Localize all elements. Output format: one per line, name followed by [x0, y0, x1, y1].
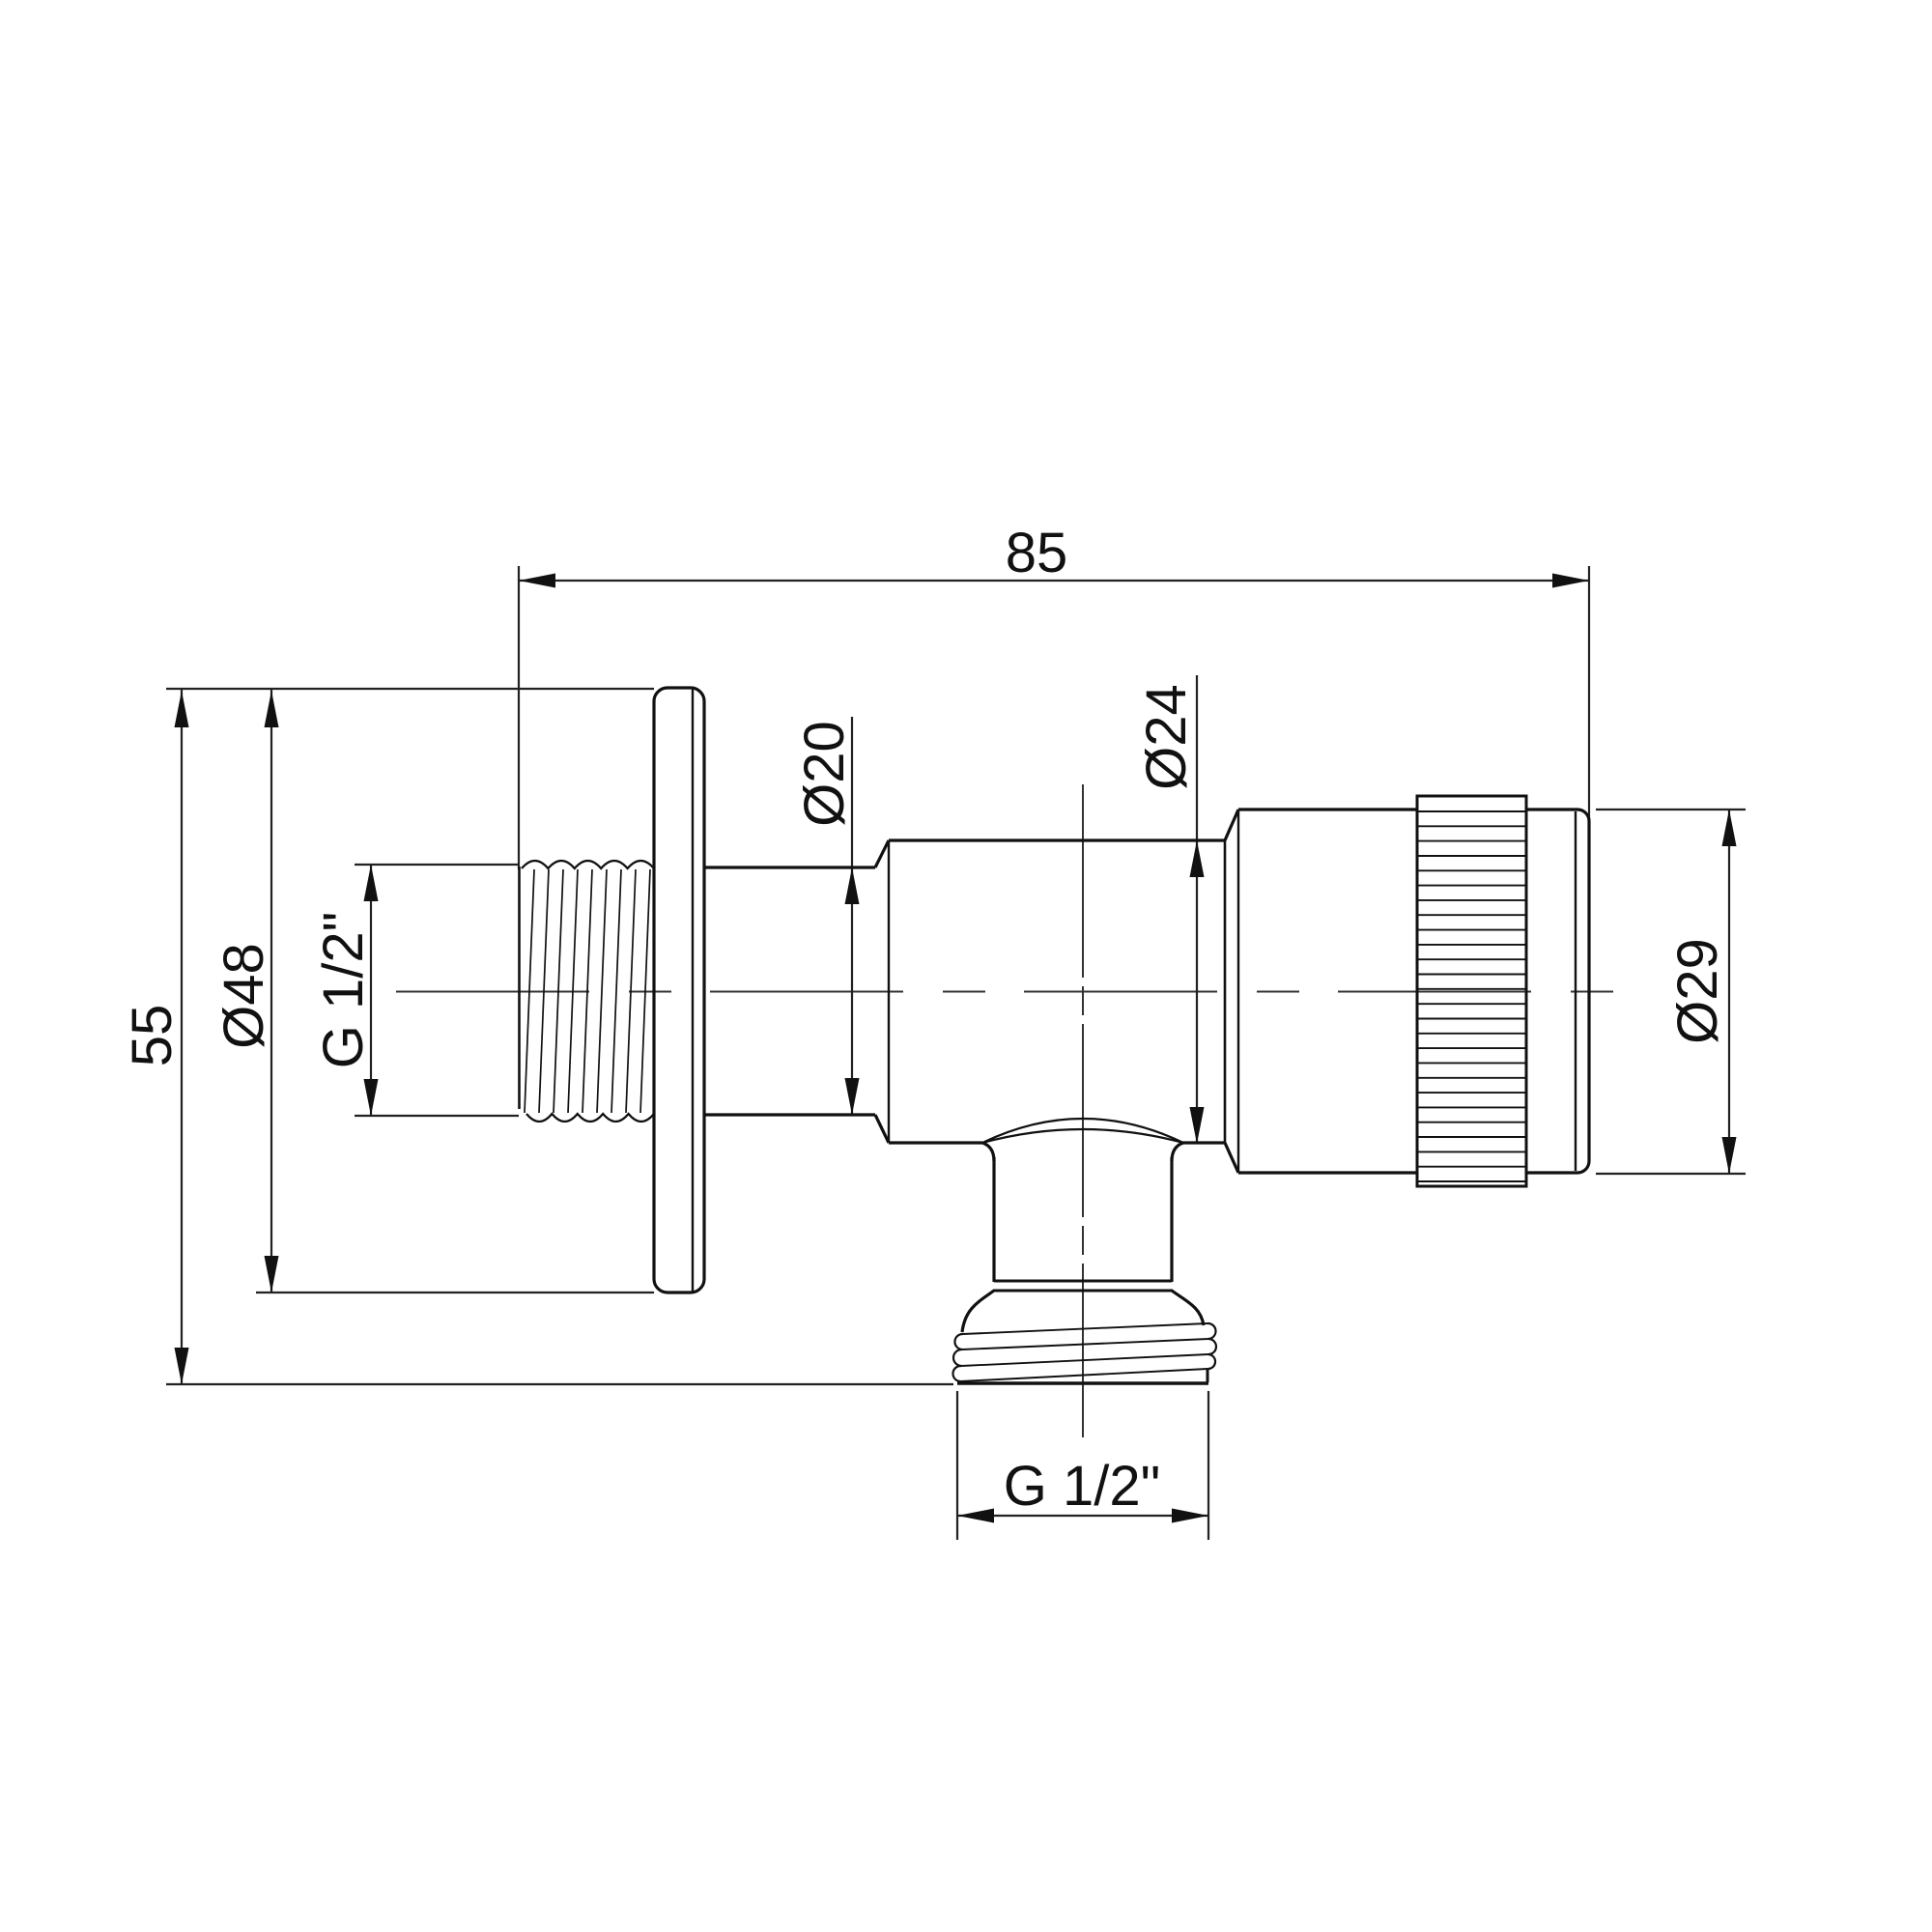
svg-text:85: 85	[1006, 522, 1068, 584]
svg-text:Ø24: Ø24	[1135, 684, 1198, 790]
svg-text:G 1/2": G 1/2"	[312, 912, 375, 1068]
svg-text:Ø29: Ø29	[1666, 938, 1729, 1044]
svg-text:G 1/2": G 1/2"	[1004, 1455, 1160, 1518]
svg-text:Ø20: Ø20	[793, 721, 856, 827]
svg-text:55: 55	[121, 1005, 184, 1067]
svg-text:Ø48: Ø48	[213, 943, 275, 1049]
